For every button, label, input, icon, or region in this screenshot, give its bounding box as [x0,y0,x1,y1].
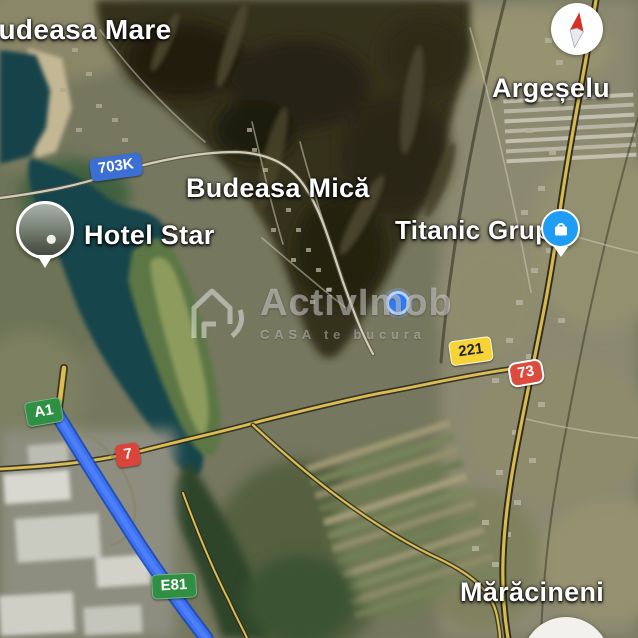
current-location-dot [386,291,410,315]
pin-tip [37,255,53,268]
place-label-maracineni: Mărăcineni [460,577,604,608]
pin-tip [554,247,568,257]
shopping-bag-icon [552,220,570,238]
compass-needle-icon [555,7,599,51]
hotel-star-photo-thumbnail [16,201,74,259]
compass-button[interactable] [551,3,603,55]
road-badge-e81: E81 [151,572,197,599]
map-canvas[interactable]: Budeasa Mare Budeasa Mică Hotel Star Tit… [0,0,638,638]
poi-label-titanic-grup[interactable]: Titanic Grup [395,215,551,246]
road-badge-7: 7 [114,442,141,468]
place-label-budeasa-mare: Budeasa Mare [0,14,171,46]
photo-marker-hotel-star[interactable] [16,201,74,273]
place-label-argeselu: Argeșelu [492,73,610,104]
place-pin-titanic-grup[interactable] [541,209,581,263]
place-label-budeasa-mica: Budeasa Mică [186,173,370,204]
poi-label-hotel-star[interactable]: Hotel Star [84,220,215,251]
